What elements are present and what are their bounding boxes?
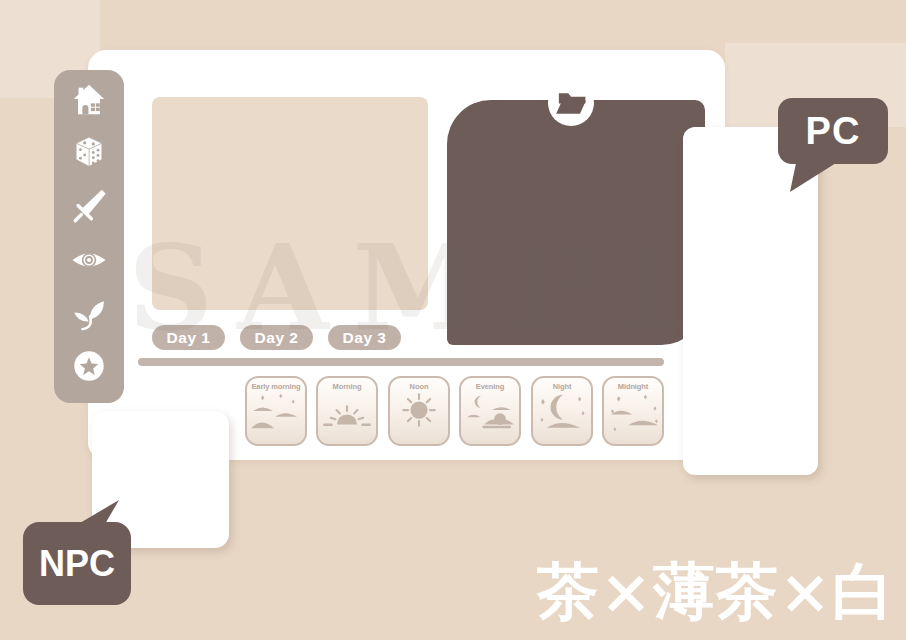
- time-card-label: Night: [553, 382, 572, 391]
- tab-day-3[interactable]: Day 3: [328, 325, 401, 350]
- npc-label-bubble: NPC: [23, 522, 131, 605]
- pc-bubble-tail: [786, 162, 838, 194]
- npc-bubble-tail: [76, 497, 124, 525]
- color-scheme-caption: 茶×薄茶×白: [537, 550, 895, 634]
- time-card-label: Midnight: [618, 382, 648, 391]
- pc-label-bubble: PC: [778, 98, 888, 164]
- time-card-morning[interactable]: Morning: [316, 376, 378, 446]
- time-card-label: Evening: [476, 382, 504, 391]
- noon-sun-icon: [392, 391, 446, 433]
- tab-day-1[interactable]: Day 1: [152, 325, 225, 350]
- scene-panel-block: [447, 100, 705, 345]
- morning-sunrise-icon: [320, 391, 374, 433]
- evening-moon-clouds-icon: [463, 391, 517, 433]
- folder-badge[interactable]: [548, 80, 594, 126]
- time-card-midnight[interactable]: Midnight: [602, 376, 664, 446]
- time-card-night[interactable]: Night: [531, 376, 593, 446]
- image-placeholder-block: [152, 97, 428, 310]
- sidebar: [54, 70, 124, 403]
- eye-icon[interactable]: [70, 241, 108, 279]
- star-circle-icon[interactable]: [70, 347, 108, 385]
- time-card-evening[interactable]: Evening: [459, 376, 521, 446]
- tab-day-2[interactable]: Day 2: [240, 325, 313, 350]
- time-card-label: Morning: [333, 382, 362, 391]
- early-morning-icon: [249, 391, 303, 433]
- midnight-stars-icon: [606, 391, 660, 433]
- sword-icon[interactable]: [70, 187, 108, 225]
- time-card-early-morning[interactable]: Early morning: [245, 376, 307, 446]
- room-layout-sample: Day 1 Day 2 Day 3 Early morning Morning: [0, 0, 906, 640]
- time-card-label: Noon: [410, 382, 429, 391]
- time-card-label: Early morning: [251, 382, 300, 391]
- open-folder-icon: [553, 89, 589, 118]
- sprout-icon[interactable]: [70, 294, 108, 332]
- divider-bar: [138, 358, 664, 366]
- dice-icon[interactable]: [70, 134, 108, 172]
- home-icon[interactable]: [70, 81, 108, 119]
- time-card-noon[interactable]: Noon: [388, 376, 450, 446]
- night-crescent-icon: [535, 391, 589, 433]
